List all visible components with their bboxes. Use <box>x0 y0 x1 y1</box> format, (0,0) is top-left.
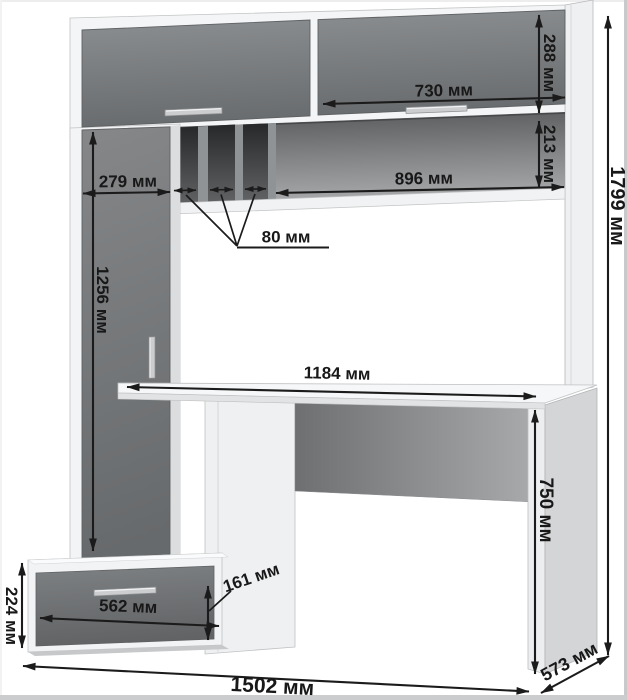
dim-213-label: 213 мм <box>540 125 559 183</box>
pigeonhole-slot-2 <box>208 125 235 203</box>
dim-1256-label: 1256 мм <box>93 266 112 334</box>
dim-niche-height: 213 мм <box>539 121 559 188</box>
dim-1799-label: 1799 мм <box>606 166 627 246</box>
dim-562-label: 562 мм <box>99 596 158 617</box>
hutch-right-side-panel <box>565 0 593 393</box>
dim-overall-width: 1502 мм <box>23 666 529 700</box>
furniture-dimension-diagram: 288 мм 730 мм 213 мм 896 мм 279 мм 80 мм <box>0 0 627 700</box>
dim-overall-height: 1799 мм <box>606 16 627 655</box>
dim-896-label: 896 мм <box>395 168 454 188</box>
diagram-canvas: 288 мм 730 мм 213 мм 896 мм 279 мм 80 мм <box>0 0 627 700</box>
dim-drawer-unit-height: 224 мм <box>2 563 22 648</box>
divider-3 <box>268 123 276 200</box>
dim-224-label: 224 мм <box>2 587 21 645</box>
dim-750-label: 750 мм <box>535 477 556 542</box>
photo-edge-left <box>0 0 2 700</box>
desk-modesty-panel <box>295 401 534 502</box>
divider-2 <box>235 125 243 202</box>
dim-1502-label: 1502 мм <box>230 673 315 700</box>
dim-279-label: 279 мм <box>99 172 158 192</box>
dim-279-line <box>83 192 170 194</box>
dim-1184-label: 1184 мм <box>304 363 371 384</box>
divider-1 <box>198 126 208 203</box>
dim-730-label: 730 мм <box>415 80 474 100</box>
photo-edge-top <box>0 0 627 2</box>
dim-80-label: 80 мм <box>262 228 311 247</box>
dim-288-label: 288 мм <box>540 34 559 92</box>
tall-door-handle <box>149 337 155 379</box>
